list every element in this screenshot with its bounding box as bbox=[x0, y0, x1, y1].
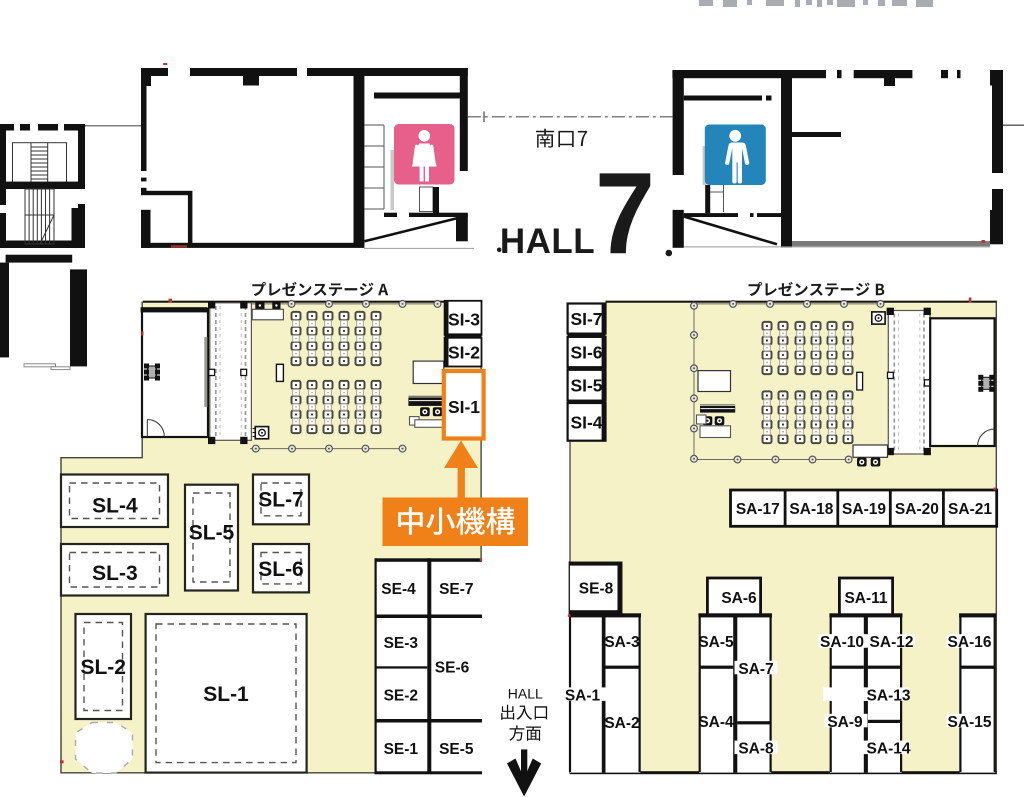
svg-text:SA-3: SA-3 bbox=[604, 634, 640, 651]
svg-text:SA-11: SA-11 bbox=[844, 590, 887, 607]
svg-text:HALL: HALL bbox=[500, 222, 595, 261]
svg-text:SA-1: SA-1 bbox=[565, 687, 601, 704]
svg-text:7: 7 bbox=[595, 149, 655, 279]
svg-text:SA-13: SA-13 bbox=[867, 687, 911, 704]
svg-text:SA-19: SA-19 bbox=[842, 501, 886, 518]
svg-text:SI-7: SI-7 bbox=[570, 309, 602, 329]
svg-text:SA-4: SA-4 bbox=[698, 714, 734, 731]
svg-text:SE-1: SE-1 bbox=[384, 741, 419, 758]
svg-text:SE-2: SE-2 bbox=[384, 687, 418, 704]
svg-text:SE-4: SE-4 bbox=[381, 581, 416, 598]
svg-text:SE-3: SE-3 bbox=[384, 635, 419, 652]
svg-text:SI-4: SI-4 bbox=[570, 412, 602, 432]
svg-text:SL-7: SL-7 bbox=[258, 488, 304, 511]
svg-text:HALL: HALL bbox=[508, 686, 543, 702]
svg-text:SA-15: SA-15 bbox=[948, 714, 992, 731]
svg-text:SA-20: SA-20 bbox=[895, 501, 939, 518]
svg-text:SA-16: SA-16 bbox=[948, 634, 992, 651]
svg-text:SL-3: SL-3 bbox=[92, 562, 138, 585]
svg-text:SA-7: SA-7 bbox=[738, 661, 773, 678]
svg-text:SI-5: SI-5 bbox=[570, 376, 602, 396]
svg-text:SA-18: SA-18 bbox=[789, 501, 833, 518]
svg-text:SL-6: SL-6 bbox=[258, 558, 304, 581]
svg-text:SI-6: SI-6 bbox=[570, 343, 602, 363]
svg-text:SA-12: SA-12 bbox=[870, 634, 914, 651]
svg-text:SL-4: SL-4 bbox=[92, 495, 138, 518]
svg-text:SA-5: SA-5 bbox=[698, 634, 734, 651]
svg-text:SE-8: SE-8 bbox=[579, 581, 614, 598]
svg-text:SA-2: SA-2 bbox=[604, 715, 639, 732]
svg-text:SA-9: SA-9 bbox=[827, 714, 863, 731]
svg-text:SA-10: SA-10 bbox=[820, 634, 864, 651]
svg-text:SI-1: SI-1 bbox=[448, 397, 480, 417]
svg-text:SA-17: SA-17 bbox=[736, 501, 780, 518]
svg-text:SA-8: SA-8 bbox=[738, 741, 774, 758]
svg-text:SA-6: SA-6 bbox=[721, 590, 757, 607]
svg-text:SI-2: SI-2 bbox=[448, 342, 480, 362]
svg-text:SE-7: SE-7 bbox=[439, 581, 473, 598]
svg-text:SA-21: SA-21 bbox=[948, 501, 992, 518]
svg-text:SL-2: SL-2 bbox=[80, 656, 126, 679]
svg-text:SL-5: SL-5 bbox=[189, 522, 235, 545]
svg-text:SE-6: SE-6 bbox=[435, 660, 470, 677]
svg-text:SA-14: SA-14 bbox=[867, 741, 911, 758]
svg-text:SE-5: SE-5 bbox=[439, 741, 474, 758]
svg-text:SL-1: SL-1 bbox=[203, 683, 249, 706]
svg-text:SI-3: SI-3 bbox=[448, 310, 480, 330]
